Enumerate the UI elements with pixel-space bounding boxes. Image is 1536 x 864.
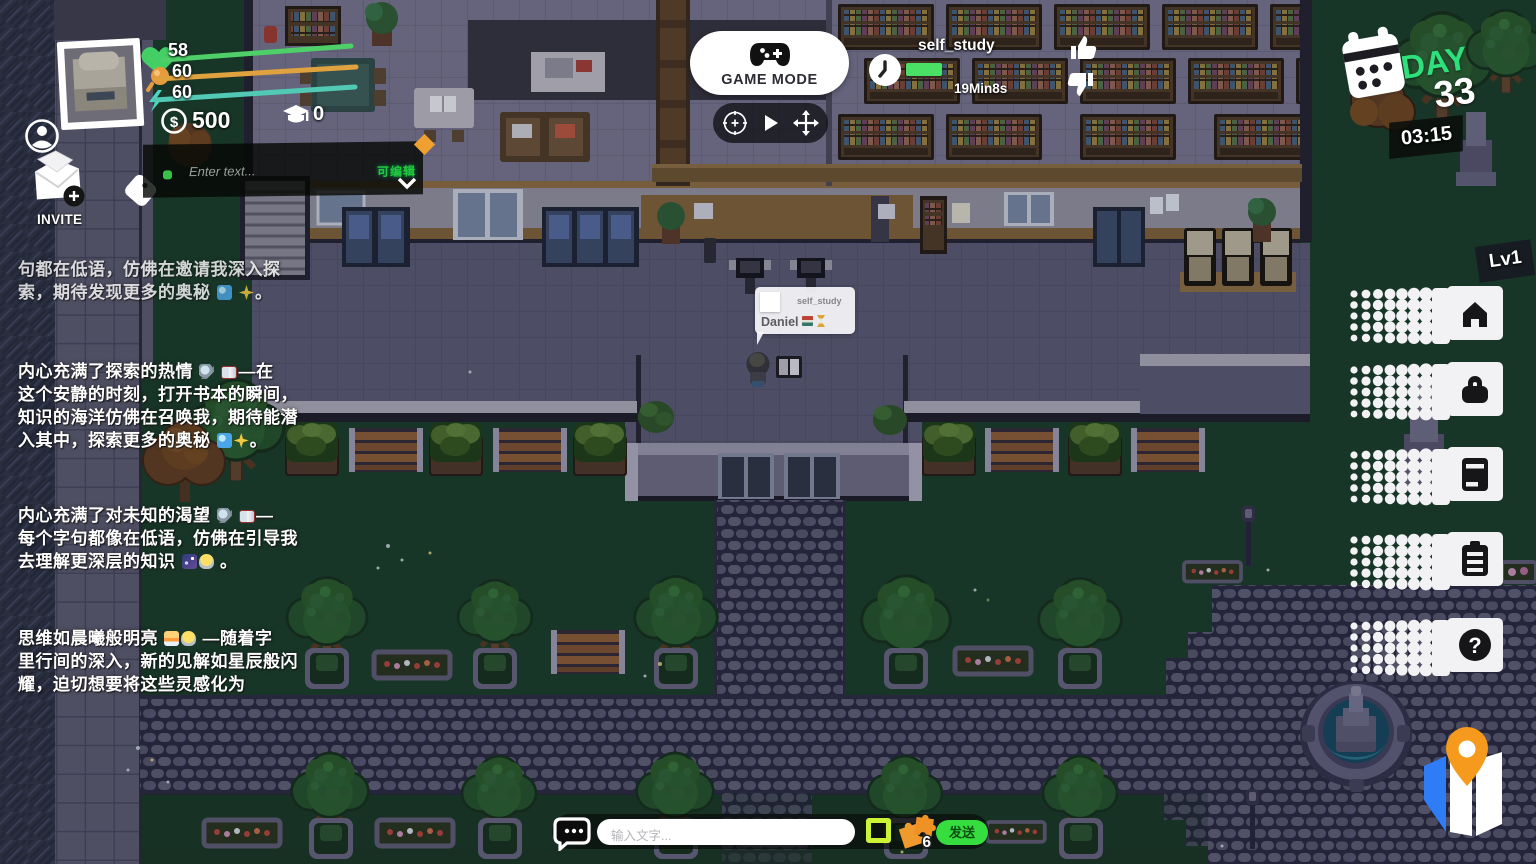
svg-text:$: $ [170, 114, 179, 131]
svg-text:?: ? [1468, 633, 1481, 658]
svg-text:6: 6 [922, 834, 931, 851]
